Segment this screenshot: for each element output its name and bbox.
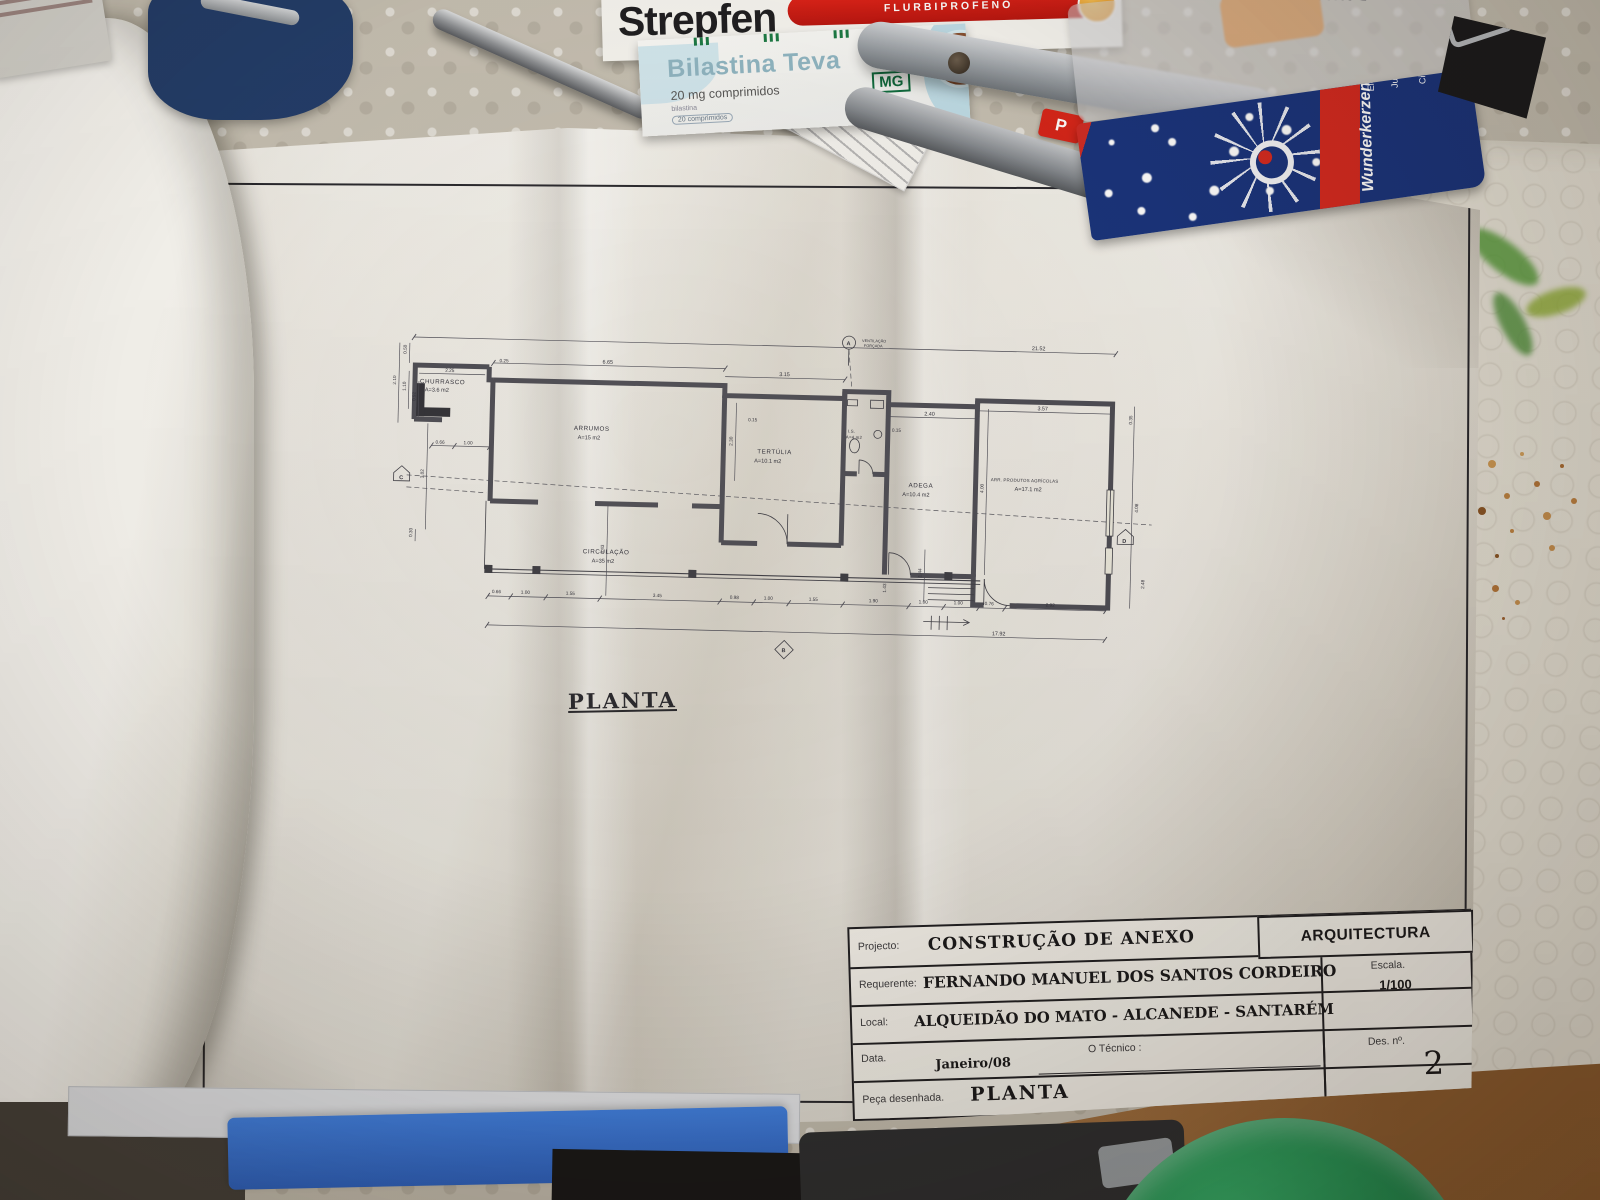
bilastina-pack-count: 20 comprimidos: [672, 113, 734, 125]
svg-text:A=15 m2: A=15 m2: [578, 435, 601, 442]
circulation-pillars: [483, 501, 982, 631]
projecto-value: CONSTRUÇÃO DE ANEXO: [928, 927, 1196, 955]
requerente-value: FERNANDO MANUEL DOS SANTOS CORDEIRO: [923, 961, 1337, 992]
local-label: Local:: [860, 1016, 888, 1029]
floor-plan-drawing: CHURRASCO A=3.6 m2 ARRUMOS A=15 m2 TERTÚ…: [386, 323, 1174, 692]
svg-text:0.15: 0.15: [748, 417, 758, 422]
svg-text:2.25: 2.25: [445, 368, 455, 373]
svg-text:3.15: 3.15: [779, 372, 790, 378]
svg-text:2.10: 2.10: [392, 375, 397, 385]
svg-text:0.92: 0.92: [411, 391, 416, 401]
sparkler-red-band: [1320, 76, 1360, 226]
escala-label: Escala.: [1370, 959, 1405, 972]
svg-text:3.02: 3.02: [420, 469, 425, 479]
svg-text:17.92: 17.92: [992, 631, 1006, 637]
svg-text:2.48: 2.48: [1140, 579, 1145, 589]
flurbiprofeno-band: FLURBIPROFENO: [787, 0, 1110, 26]
discipline-box: ARQUITECTURA: [1257, 910, 1474, 959]
svg-text:A=3.6 m2: A=3.6 m2: [425, 387, 449, 394]
drawing-sheet: CHURRASCO A=3.6 m2 ARRUMOS A=15 m2 TERTÚ…: [55, 128, 1480, 1128]
svg-text:1.90: 1.90: [869, 598, 879, 603]
svg-text:2.92: 2.92: [1046, 603, 1056, 608]
svg-text:0.76: 0.76: [985, 601, 995, 606]
svg-text:0.35: 0.35: [1128, 415, 1133, 425]
svg-text:0.25: 0.25: [499, 358, 509, 363]
svg-text:1.55: 1.55: [566, 591, 576, 596]
svg-text:0.30: 0.30: [408, 527, 413, 537]
green-ticks: [833, 28, 836, 38]
svg-text:2.40: 2.40: [924, 411, 935, 417]
svg-text:0.15: 0.15: [892, 428, 902, 433]
plan-caption: PLANTA: [568, 687, 677, 714]
svg-text:TERTÚLIA: TERTÚLIA: [757, 448, 792, 456]
svg-text:3.57: 3.57: [1037, 406, 1048, 412]
svg-text:ARRUMOS: ARRUMOS: [574, 425, 610, 433]
crumbs: [1492, 585, 1499, 592]
svg-text:1.44: 1.44: [917, 568, 922, 578]
svg-text:ADEGA: ADEGA: [908, 482, 933, 490]
section-markers: A VENTILAÇÃO FORÇADA B C D: [389, 325, 1138, 667]
projecto-label: Projecto:: [858, 940, 900, 953]
blue-case: [148, 0, 353, 120]
window-symbol: [1105, 490, 1114, 574]
svg-text:1.43: 1.43: [882, 583, 887, 593]
des-label: Des. nº.: [1368, 1035, 1405, 1048]
svg-text:C: C: [399, 475, 403, 481]
svg-text:CIRCULAÇÃO: CIRCULAÇÃO: [583, 548, 630, 556]
green-ticks: [694, 36, 697, 46]
svg-text:1.00: 1.00: [521, 590, 531, 595]
svg-text:1.10: 1.10: [402, 381, 407, 391]
photo-of-floor-plan: CHURRASCO A=3.6 m2 ARRUMOS A=15 m2 TERTÚ…: [0, 0, 1600, 1200]
des-number: 2: [1423, 1044, 1444, 1083]
svg-text:4.08: 4.08: [1134, 503, 1139, 513]
local-value: ALQUEIDÃO DO MATO - ALCANEDE - SANTARÉM: [914, 1000, 1334, 1030]
svg-text:0.66: 0.66: [492, 589, 502, 594]
svg-text:I.S.: I.S.: [848, 429, 856, 434]
data-label: Data.: [861, 1052, 886, 1065]
scissors-pivot: [948, 52, 970, 74]
svg-text:A: A: [846, 341, 850, 347]
walls: [410, 365, 1113, 608]
svg-text:D: D: [1122, 539, 1126, 545]
bathroom-fixtures: [846, 400, 883, 454]
svg-text:21.52: 21.52: [1032, 346, 1046, 352]
wrapper-brand: DAVAND: [1297, 0, 1367, 4]
svg-text:6.65: 6.65: [602, 360, 613, 366]
svg-text:A=10.4 m2: A=10.4 m2: [902, 492, 929, 499]
svg-text:CHURRASCO: CHURRASCO: [420, 378, 465, 386]
svg-text:1.00: 1.00: [463, 440, 473, 445]
svg-text:A=10.1 m2: A=10.1 m2: [754, 458, 781, 465]
title-block: Projecto: CONSTRUÇÃO DE ANEXO ARQUITECTU…: [847, 909, 1476, 1121]
svg-text:1.55: 1.55: [809, 597, 819, 602]
svg-text:3.43: 3.43: [600, 544, 605, 554]
svg-text:0.98: 0.98: [730, 595, 740, 600]
svg-text:FORÇADA: FORÇADA: [864, 344, 883, 348]
green-ticks: [763, 32, 766, 42]
curled-page: [0, 18, 254, 1138]
svg-text:A=35 m2: A=35 m2: [592, 558, 615, 565]
svg-text:3.45: 3.45: [653, 593, 663, 598]
star-decoration: [1108, 139, 1115, 146]
svg-text:0.50: 0.50: [403, 344, 408, 354]
svg-text:A=17.1 m2: A=17.1 m2: [1014, 487, 1041, 494]
data-value: Janeiro/08: [935, 1056, 1011, 1073]
svg-text:0.66: 0.66: [435, 440, 445, 445]
svg-text:ARR. PRODUTOS AGRÍCOLAS: ARR. PRODUTOS AGRÍCOLAS: [991, 477, 1059, 484]
svg-text:4.00: 4.00: [979, 483, 984, 493]
requerente-label: Requerente:: [859, 977, 917, 991]
svg-text:1.00: 1.00: [764, 596, 774, 601]
peca-value: PLANTA: [970, 1081, 1070, 1106]
tecnico-label: O Técnico :: [1088, 1042, 1142, 1056]
bilastina-substance: bilastina: [671, 105, 697, 113]
svg-text:1.00: 1.00: [954, 600, 964, 605]
svg-text:VENTILAÇÃO: VENTILAÇÃO: [862, 338, 886, 344]
svg-text:2.30: 2.30: [728, 436, 733, 446]
svg-text:A=4 m2: A=4 m2: [846, 435, 863, 440]
svg-text:B: B: [781, 648, 785, 654]
escala-value: 1/100: [1379, 977, 1412, 993]
peca-label: Peça desenhada.: [862, 1092, 944, 1106]
